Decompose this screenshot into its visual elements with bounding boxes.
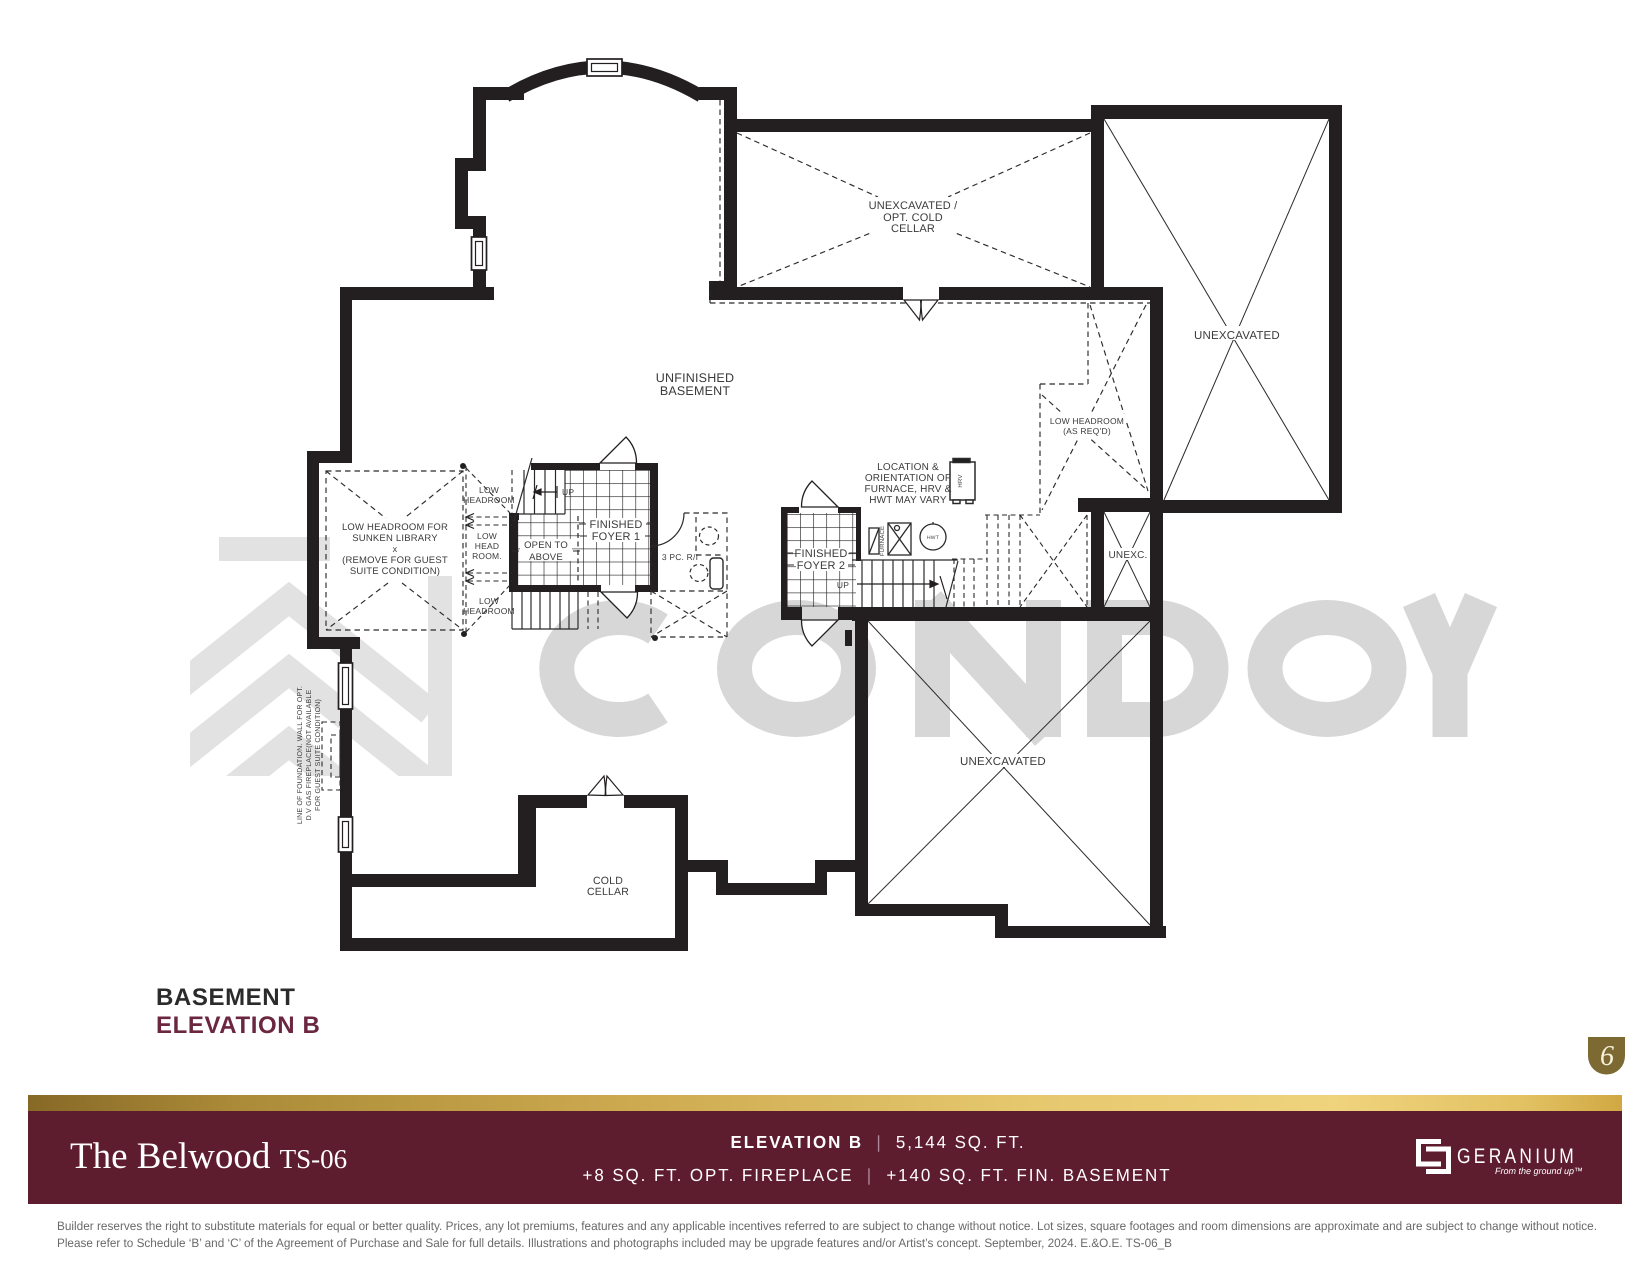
svg-text:6: 6 <box>1600 1041 1614 1072</box>
svg-text:HWT: HWT <box>927 535 939 541</box>
svg-text:SUITE CONDITION): SUITE CONDITION) <box>350 566 440 577</box>
svg-text:UNEXCAVATED /: UNEXCAVATED / <box>869 200 959 212</box>
svg-text:FURNACE, HRV &: FURNACE, HRV & <box>864 484 951 495</box>
svg-text:HEADROOM: HEADROOM <box>463 606 515 616</box>
svg-text:UP: UP <box>562 487 574 497</box>
svg-text:BASEMENT: BASEMENT <box>156 984 295 1011</box>
svg-text:3 PC. R/I: 3 PC. R/I <box>662 552 698 562</box>
svg-text:LINE OF FOUNDATION. WALL FOR O: LINE OF FOUNDATION. WALL FOR OPT. <box>297 686 304 824</box>
svg-text:FOR GUEST SUITE CONDITION): FOR GUEST SUITE CONDITION) <box>314 699 322 811</box>
svg-text:BASEMENT: BASEMENT <box>660 384 731 398</box>
svg-text:UNEXCAVATED: UNEXCAVATED <box>1194 330 1280 342</box>
svg-text:ELEVATION B | 5,144 SQ. FT.: ELEVATION B | 5,144 SQ. FT. <box>731 1132 1026 1152</box>
svg-text:FINISHED: FINISHED <box>590 519 643 531</box>
svg-text:CELLAR: CELLAR <box>891 223 935 235</box>
svg-text:x: x <box>393 544 398 554</box>
svg-text:HEADROOM: HEADROOM <box>463 495 515 505</box>
svg-text:FOYER 1: FOYER 1 <box>592 531 640 543</box>
svg-text:UP: UP <box>837 580 849 590</box>
svg-text:HEAD: HEAD <box>475 541 499 551</box>
svg-text:LOW: LOW <box>479 485 499 495</box>
svg-text:ELEVATION B: ELEVATION B <box>156 1012 320 1039</box>
svg-text:UNEXC.: UNEXC. <box>1109 550 1148 561</box>
svg-text:(REMOVE FOR GUEST: (REMOVE FOR GUEST <box>342 555 448 566</box>
svg-text:+8 SQ. FT. OPT. FIREPLACE |: +8 SQ. FT. OPT. FIREPLACE | +140 SQ. FT.… <box>583 1165 1172 1185</box>
svg-text:GERANIUM: GERANIUM <box>1457 1145 1577 1168</box>
svg-text:From the ground up™: From the ground up™ <box>1495 1166 1583 1176</box>
svg-text:FOYER 2: FOYER 2 <box>797 560 845 572</box>
svg-text:Builder reserves the right to: Builder reserves the right to substitute… <box>57 1219 1597 1233</box>
svg-text:LOCATION &: LOCATION & <box>877 462 939 473</box>
svg-text:OPEN TO: OPEN TO <box>524 540 568 551</box>
svg-text:LOW: LOW <box>479 596 499 606</box>
svg-text:SUNKEN LIBRARY: SUNKEN LIBRARY <box>352 533 438 544</box>
svg-text:D.V GAS FIREPLACE(NOT AVAILABL: D.V GAS FIREPLACE(NOT AVAILABLE <box>305 690 313 821</box>
svg-text:ROOM.: ROOM. <box>472 551 502 561</box>
svg-text:UNFINISHED: UNFINISHED <box>656 371 734 385</box>
svg-text:FINISHED: FINISHED <box>795 548 848 560</box>
svg-text:HWT MAY VARY: HWT MAY VARY <box>869 495 947 506</box>
svg-text:UNEXCAVATED: UNEXCAVATED <box>960 756 1046 768</box>
svg-text:FURNACE: FURNACE <box>879 526 886 556</box>
svg-text:ORIENTATION OF: ORIENTATION OF <box>865 473 951 484</box>
svg-text:LOW HEADROOM FOR: LOW HEADROOM FOR <box>342 522 448 533</box>
svg-text:LOW HEADROOM: LOW HEADROOM <box>1050 416 1124 426</box>
svg-text:Please refer to Schedule ‘B’ a: Please refer to Schedule ‘B’ and ‘C’ of … <box>57 1236 1172 1250</box>
svg-text:(AS REQ’D): (AS REQ’D) <box>1063 426 1111 436</box>
svg-text:HRV: HRV <box>957 474 964 487</box>
svg-text:CELLAR: CELLAR <box>587 886 629 898</box>
svg-text:ABOVE: ABOVE <box>529 552 563 563</box>
svg-text:LOW: LOW <box>477 531 497 541</box>
